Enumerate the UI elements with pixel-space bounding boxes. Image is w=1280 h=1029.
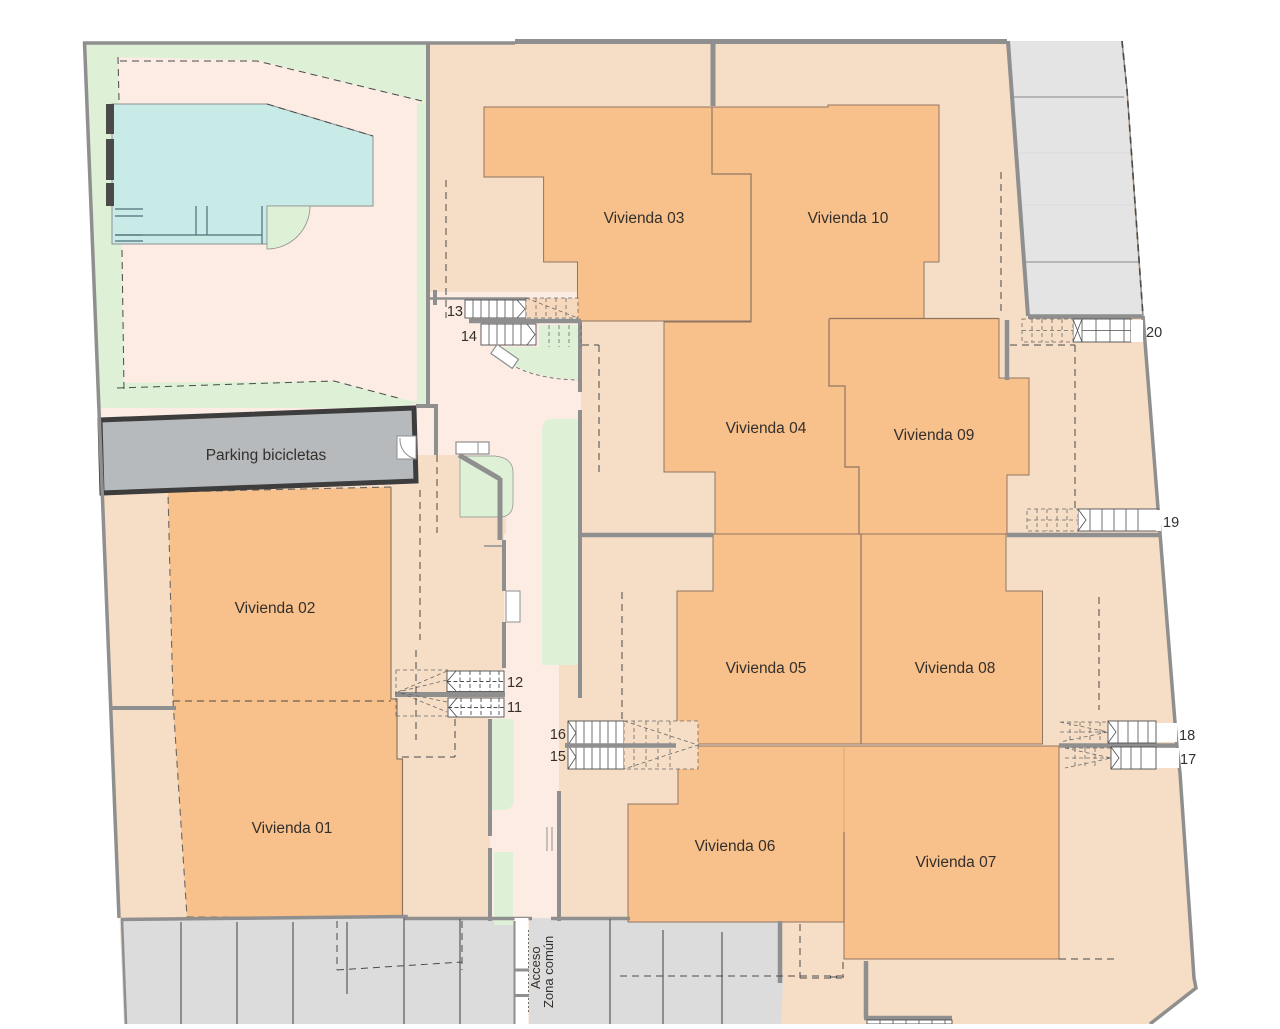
svg-text:Vivienda 02: Vivienda 02: [235, 600, 316, 617]
svg-text:Vivienda 10: Vivienda 10: [808, 210, 889, 227]
svg-text:Vivienda 05: Vivienda 05: [726, 660, 807, 677]
svg-text:17: 17: [1180, 752, 1196, 768]
svg-text:Zona común: Zona común: [541, 936, 556, 1008]
svg-text:Vivienda 01: Vivienda 01: [252, 820, 333, 837]
svg-text:19: 19: [1163, 515, 1179, 531]
svg-text:11: 11: [507, 700, 522, 716]
svg-text:15: 15: [550, 749, 566, 765]
svg-text:Vivienda 09: Vivienda 09: [894, 427, 975, 444]
svg-text:Vivienda 03: Vivienda 03: [604, 210, 685, 227]
svg-text:Parking bicicletas: Parking bicicletas: [206, 447, 327, 464]
svg-text:20: 20: [1146, 325, 1162, 341]
svg-text:16: 16: [550, 727, 566, 743]
svg-text:13: 13: [447, 304, 463, 320]
svg-text:Vivienda 08: Vivienda 08: [915, 660, 996, 677]
svg-text:Vivienda 04: Vivienda 04: [726, 420, 807, 437]
svg-text:Vivienda 07: Vivienda 07: [916, 854, 997, 871]
svg-text:18: 18: [1179, 728, 1195, 744]
svg-text:12: 12: [507, 675, 523, 691]
svg-text:14: 14: [461, 329, 477, 345]
svg-text:Vivienda 06: Vivienda 06: [695, 838, 776, 855]
